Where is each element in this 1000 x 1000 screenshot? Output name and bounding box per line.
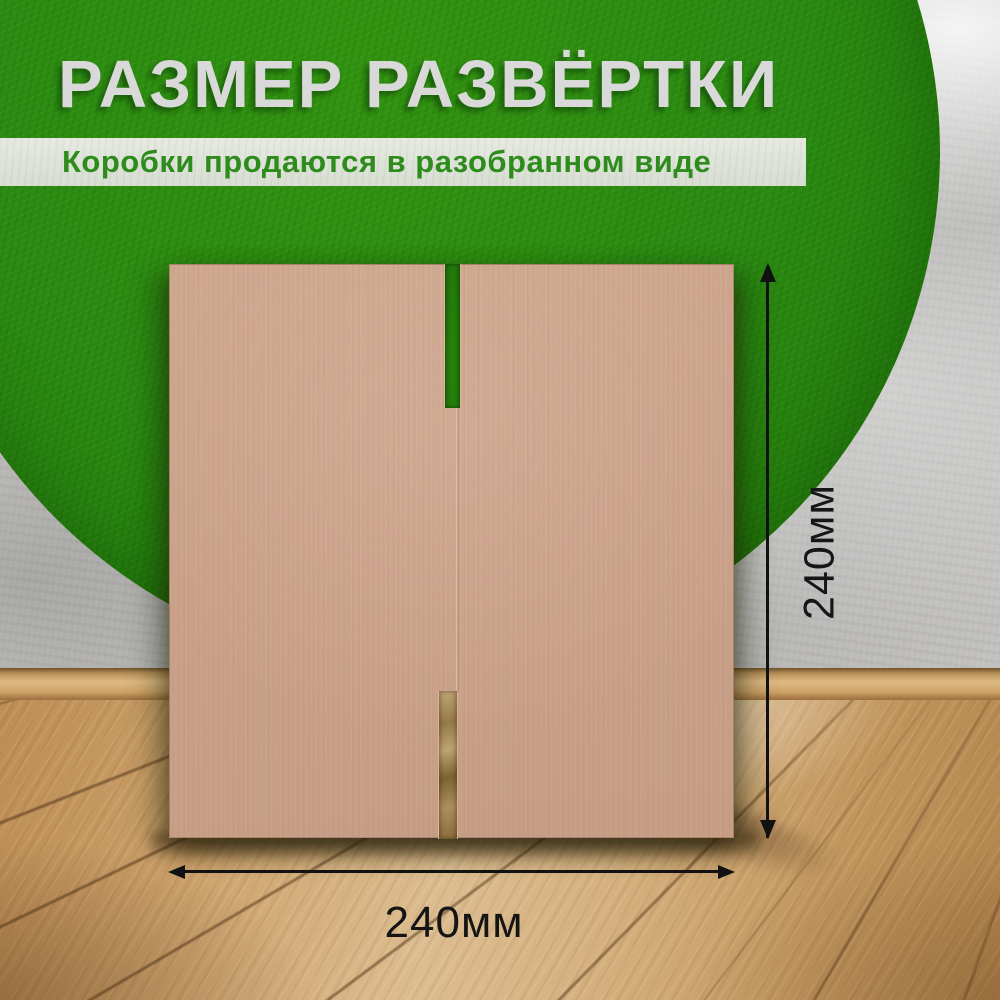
product-infographic-scene: 240мм 240мм РАЗМЕР РАЗВЁРТКИ Коробки про…: [0, 0, 1000, 1000]
top-slot-cutout: [444, 264, 461, 408]
height-arrow-line: [766, 266, 769, 838]
width-arrow-right-head: [718, 865, 735, 879]
width-arrow-left-head: [168, 865, 185, 879]
width-arrow-line: [180, 870, 726, 873]
height-arrow-top-head: [760, 263, 776, 282]
cardboard-flat-sheet: [169, 264, 734, 838]
bottom-slot-cutout: [438, 691, 458, 839]
height-dimension-label: 240мм: [796, 484, 845, 620]
subtitle-text: Коробки продаются в разобранном виде: [62, 144, 711, 180]
width-dimension-label: 240мм: [385, 898, 524, 948]
height-arrow-bottom-head: [760, 820, 776, 839]
subtitle-band: Коробки продаются в разобранном виде: [0, 138, 806, 186]
center-crease-line: [456, 408, 459, 692]
page-title: РАЗМЕР РАЗВЁРТКИ: [58, 46, 779, 123]
